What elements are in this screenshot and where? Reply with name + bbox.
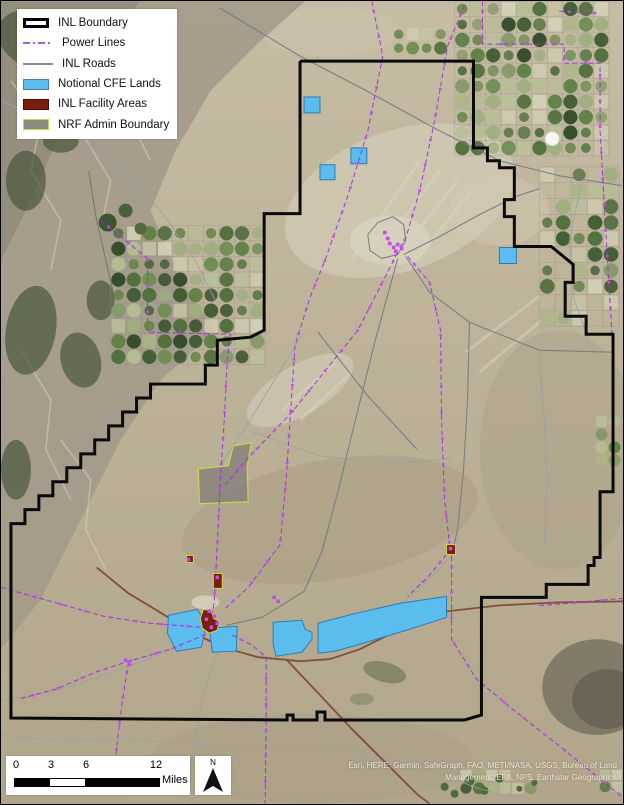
power-line-pylon-dot [84, 610, 87, 613]
power-line-pylon-dot [323, 260, 326, 263]
substation-node [216, 621, 220, 625]
attribution-line-2: Management, EPA, NPS, Earthstar Geograph… [287, 772, 617, 784]
power-line-pylon-dot [265, 729, 268, 732]
crop-circle [516, 786, 522, 792]
power-line-pylon-dot [442, 463, 445, 466]
scale-bar-middle-segment [50, 779, 85, 786]
power-line-pylon-dot [429, 283, 432, 286]
power-line-pylon-dot [440, 411, 443, 414]
legend-item-inl-roads: INL Roads [23, 55, 171, 73]
scale-unit-label: Miles [162, 774, 188, 786]
power-line-pylon-dot [356, 329, 359, 332]
power-line-pylon-dot [215, 566, 218, 569]
power-line-pylon-dot [279, 539, 282, 542]
power-line-pylon-dot [599, 100, 602, 103]
power-line-pylon-dot [324, 370, 327, 373]
substation-node [208, 610, 212, 614]
power-line-pylon-dot [439, 561, 442, 564]
power-line-pylon-dot [563, 749, 566, 752]
power-line-pylon-dot [380, 283, 383, 286]
power-line-pylon-dot [552, 43, 555, 46]
power-line-pylon-dot [445, 515, 448, 518]
legend-label: INL Facility Areas [58, 98, 147, 110]
farm-fields [455, 1, 610, 156]
power-line-pylon-dot [563, 58, 566, 61]
power-line-pylon-dot [424, 164, 427, 167]
power-line-pylon-dot [609, 307, 612, 310]
power-line-pylon-dot [297, 333, 300, 336]
substation-node [210, 625, 214, 629]
power-line-pylon-dot [526, 43, 529, 46]
scale-tick: 12 [150, 759, 162, 771]
scale-tick: 3 [48, 759, 54, 771]
scale-tick: 6 [83, 759, 89, 771]
power-line-pylon-dot [378, 35, 381, 38]
power-line-pylon-dot [543, 733, 546, 736]
power-line-pylon-dot [213, 592, 216, 595]
power-line-pylon-dot [600, 599, 603, 602]
power-line-pylon-dot [107, 226, 110, 229]
power-line-pylon-dot [240, 638, 243, 641]
power-line-pylon-dot [216, 540, 219, 543]
power-line-pylon-dot [429, 139, 432, 142]
north-arrow-icon [195, 766, 231, 794]
crop-circle [135, 223, 147, 235]
forest-patch [1, 440, 31, 500]
power-line-pylon-dot [483, 684, 486, 687]
legend-label: Notional CFE Lands [58, 78, 161, 90]
power-line-pylon-dot [467, 664, 470, 667]
power-line-pylon-dot [594, 12, 597, 15]
power-line-pylon-dot [179, 644, 182, 647]
attribution-line-1: Esri, HERE, Garmin, SafeGraph, FAO, METI… [287, 760, 617, 772]
substation-node [388, 242, 392, 246]
substation-node [216, 576, 220, 580]
power-line-pylon-dot [364, 137, 367, 140]
scale-bar: 0 3 6 12 Miles [6, 756, 190, 795]
power-line-pylon-dot [450, 617, 453, 620]
power-line-pylon-dot [204, 332, 207, 335]
power-line-pylon-dot [161, 623, 164, 626]
power-line-pylon-dot [349, 186, 352, 189]
power-lines-swatch-icon [23, 42, 53, 44]
cfe-lands-swatch-icon [23, 79, 49, 90]
power-line-pylon-dot [291, 384, 294, 387]
power-line-pylon-dot [443, 489, 446, 492]
power-line-pylon-dot [146, 259, 149, 262]
crop-circle [99, 214, 117, 232]
substation-node [187, 558, 191, 562]
substation-node [400, 247, 404, 251]
power-line-pylon-dot [265, 677, 268, 680]
legend-item-inl-facility-areas: INL Facility Areas [23, 95, 171, 113]
power-line-pylon-dot [440, 360, 443, 363]
legend-label: INL Roads [62, 58, 116, 70]
legend-item-power-lines: Power Lines [23, 34, 171, 52]
power-line-pylon-dot [434, 113, 437, 116]
cfe-land-polygon [499, 247, 516, 263]
power-line-pylon-dot [548, 603, 551, 606]
forest-patch [6, 151, 46, 211]
power-line-pylon-dot [109, 616, 112, 619]
power-line-pylon-dot [450, 591, 453, 594]
legend-label: INL Boundary [58, 17, 128, 29]
substation-node [449, 547, 453, 551]
inl-boundary-swatch-icon [23, 18, 49, 28]
power-line-pylon-dot [223, 411, 226, 414]
inl-roads-swatch-icon [23, 63, 53, 65]
power-line-pylon-dot [606, 255, 609, 258]
power-line-pylon-dot [341, 211, 344, 214]
power-line-pylon-dot [392, 260, 395, 263]
terrain-patch [450, 176, 550, 246]
power-line-pylon-dot [146, 285, 149, 288]
cfe-land-polygon [167, 609, 206, 651]
map-attribution: Esri, HERE, Garmin, SafeGraph, FAO, METI… [287, 760, 617, 783]
power-line-pylon-dot [282, 513, 285, 516]
power-line-pylon-dot [449, 37, 452, 40]
legend-item-notional-cfe-lands: Notional CFE Lands [23, 75, 171, 93]
power-line-pylon-dot [34, 596, 37, 599]
power-line-pylon-dot [266, 561, 269, 564]
power-line-pylon-dot [603, 203, 606, 206]
substation-node [272, 596, 276, 600]
power-line-pylon-dot [229, 333, 232, 336]
power-line-pylon-dot [265, 703, 268, 706]
power-line-pylon-dot [368, 306, 371, 309]
power-line-pylon-dot [340, 349, 343, 352]
power-line-pylon-dot [523, 717, 526, 720]
power-line-pylon-dot [372, 10, 375, 13]
power-line-pylon-dot [222, 437, 225, 440]
power-line-pylon-dot [286, 462, 289, 465]
power-line-pylon-dot [418, 189, 421, 192]
power-line-pylon-dot [308, 390, 311, 393]
power-line-pylon-dot [599, 74, 602, 77]
power-line-pylon-dot [250, 581, 253, 584]
crop-circle [451, 790, 459, 798]
scale-tick: 0 [13, 759, 19, 771]
power-line-pylon-dot [422, 580, 425, 583]
power-line-pylon-dot [574, 601, 577, 604]
substation-node [386, 237, 390, 241]
map-export: INL Boundary Power Lines INL Roads Notio… [0, 0, 624, 805]
substation-node [392, 246, 396, 250]
power-line-pylon-dot [57, 687, 60, 690]
power-line-pylon-dot [332, 235, 335, 238]
power-line-pylon-dot [293, 358, 296, 361]
nrf-admin-swatch-icon [23, 119, 49, 130]
power-line-pylon-dot [607, 281, 610, 284]
power-line-pylon-dot [220, 463, 223, 466]
power-line-pylon-dot [568, 10, 571, 13]
legend-label: NRF Admin Boundary [58, 119, 169, 131]
power-line-pylon-dot [81, 677, 84, 680]
power-line-pylon-dot [105, 667, 108, 670]
power-line-pylon-dot [453, 642, 456, 645]
power-line-pylon-dot [178, 332, 181, 335]
substation-node [396, 243, 400, 247]
power-line-pylon-dot [481, 36, 484, 39]
power-line-pylon-dot [284, 487, 287, 490]
scale-bar-segments [14, 778, 160, 787]
power-line-pylon-dot [226, 359, 229, 362]
substation-node [213, 615, 217, 619]
power-line-pylon-dot [59, 603, 62, 606]
power-line-pylon-dot [305, 308, 308, 311]
power-line-pylon-dot [264, 781, 267, 784]
power-line-pylon-dot [225, 385, 228, 388]
power-line-pylon-dot [152, 331, 155, 334]
power-line-pylon-dot [440, 385, 443, 388]
power-line-pylon-dot [599, 126, 602, 129]
power-line-pylon-dot [219, 489, 222, 492]
power-line-pylon-dot [32, 694, 35, 697]
power-line-pylon-dot [122, 696, 125, 699]
power-line-pylon-dot [256, 447, 259, 450]
power-line-pylon-dot [129, 659, 132, 662]
power-line-pylon-dot [127, 242, 130, 245]
power-line-pylon-dot [126, 671, 129, 674]
power-line-pylon-dot [238, 467, 241, 470]
legend-item-nrf-admin-boundary: NRF Admin Boundary [23, 116, 171, 134]
crop-circle [545, 132, 559, 146]
power-line-pylon-dot [585, 62, 588, 65]
substation-node [128, 662, 132, 666]
power-line-pylon-dot [503, 701, 506, 704]
substation-node [276, 600, 280, 604]
power-line-pylon-dot [413, 263, 416, 266]
power-line-pylon-dot [602, 177, 605, 180]
crop-circle [441, 783, 449, 791]
legend: INL Boundary Power Lines INL Roads Notio… [17, 9, 177, 139]
power-line-pylon-dot [435, 308, 438, 311]
substation-node [383, 231, 387, 235]
power-line-pylon-dot [411, 214, 414, 217]
power-line-pylon-dot [118, 722, 121, 725]
facility-areas-swatch-icon [23, 99, 49, 110]
crop-circle [119, 204, 133, 218]
power-line-pylon-dot [115, 748, 118, 751]
terrain-patch [191, 595, 219, 609]
legend-label: Power Lines [62, 37, 125, 49]
power-line-pylon-dot [217, 514, 220, 517]
substation-node [205, 618, 209, 622]
scale-bar-ticks: 0 3 6 12 [6, 759, 190, 773]
power-line-pylon-dot [370, 111, 373, 114]
power-line-pylon-dot [459, 13, 462, 16]
power-line-pylon-dot [357, 161, 360, 164]
substation-node [124, 658, 128, 662]
power-line-pylon-dot [135, 620, 138, 623]
power-line-pylon-dot [441, 437, 444, 440]
power-line-pylon-dot [500, 43, 503, 46]
power-line-pylon-dot [203, 634, 206, 637]
legend-item-inl-boundary: INL Boundary [23, 14, 171, 32]
power-line-pylon-dot [273, 429, 276, 432]
north-arrow: N [195, 756, 231, 795]
power-line-pylon-dot [604, 229, 607, 232]
power-line-pylon-dot [232, 600, 235, 603]
power-line-pylon-dot [291, 410, 294, 413]
power-line-pylon-dot [450, 565, 453, 568]
power-line-pylon-dot [186, 625, 189, 628]
power-line-pylon-dot [288, 436, 291, 439]
power-line-pylon-dot [314, 284, 317, 287]
power-line-pylon-dot [439, 88, 442, 91]
terrain-patch [350, 693, 374, 705]
power-line-pylon-dot [154, 652, 157, 655]
farm-fields [111, 226, 266, 365]
power-line-pylon-dot [375, 86, 378, 89]
power-line-pylon-dot [264, 755, 267, 758]
cfe-land-polygon [320, 165, 335, 180]
cfe-land-polygon [304, 97, 320, 113]
power-line-pylon-dot [481, 10, 484, 13]
power-line-pylon-dot [261, 653, 264, 656]
substation-node [394, 250, 398, 254]
power-line-pylon-dot [146, 311, 149, 314]
power-line-pylon-dot [600, 151, 603, 154]
power-line-pylon-dot [403, 239, 406, 242]
power-line-pylon-dot [439, 334, 442, 337]
power-line-pylon-dot [448, 541, 451, 544]
